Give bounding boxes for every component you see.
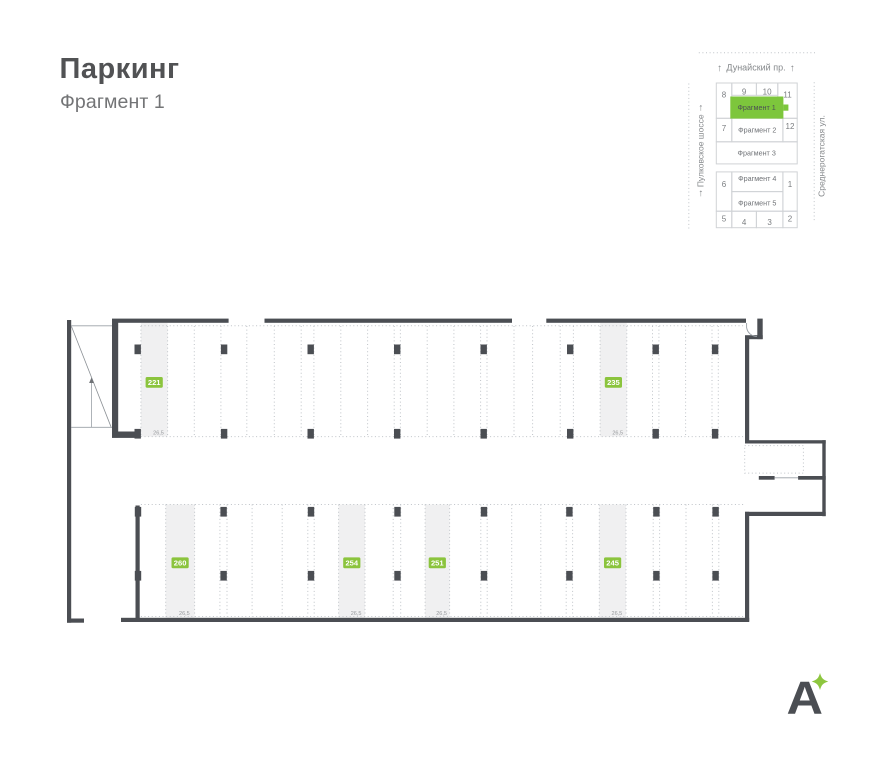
svg-text:260: 260 (174, 559, 187, 568)
svg-text:8: 8 (722, 91, 727, 100)
svg-text:Пулковское шоссе: Пулковское шоссе (696, 114, 706, 187)
svg-text:Фрагмент 1: Фрагмент 1 (737, 103, 775, 112)
svg-text:251: 251 (431, 559, 444, 568)
svg-text:Дунайский пр.: Дунайский пр. (726, 63, 785, 73)
svg-text:Фрагмент 2: Фрагмент 2 (738, 126, 776, 135)
svg-text:245: 245 (606, 559, 619, 568)
svg-text:10: 10 (763, 88, 772, 97)
svg-text:Паркинг: Паркинг (60, 53, 180, 85)
svg-text:11: 11 (783, 91, 792, 100)
svg-text:26,5: 26,5 (351, 611, 362, 617)
svg-text:221: 221 (148, 378, 161, 387)
svg-text:Среднерогатская ул.: Среднерогатская ул. (817, 115, 827, 197)
svg-text:4: 4 (742, 218, 747, 227)
svg-text:26,5: 26,5 (436, 611, 447, 617)
svg-text:↑: ↑ (717, 63, 722, 74)
svg-text:↑: ↑ (698, 103, 703, 114)
svg-text:26,5: 26,5 (612, 611, 623, 617)
svg-text:5: 5 (722, 215, 727, 224)
svg-text:Фрагмент 4: Фрагмент 4 (738, 174, 776, 183)
svg-text:1: 1 (788, 180, 793, 189)
svg-text:7: 7 (722, 124, 727, 133)
svg-text:26,5: 26,5 (179, 611, 190, 617)
svg-text:6: 6 (722, 180, 727, 189)
svg-text:↑: ↑ (698, 188, 703, 199)
svg-text:254: 254 (345, 559, 358, 568)
svg-text:Фрагмент 3: Фрагмент 3 (738, 149, 776, 158)
svg-text:9: 9 (742, 88, 747, 97)
svg-text:Фрагмент 5: Фрагмент 5 (738, 199, 776, 208)
svg-text:26,5: 26,5 (612, 430, 623, 436)
svg-text:12: 12 (786, 122, 795, 131)
svg-text:235: 235 (607, 378, 620, 387)
svg-text:Фрагмент 1: Фрагмент 1 (60, 91, 165, 113)
svg-text:3: 3 (767, 218, 772, 227)
svg-text:2: 2 (788, 215, 793, 224)
svg-text:↑: ↑ (790, 63, 795, 74)
svg-text:26,5: 26,5 (153, 430, 164, 436)
